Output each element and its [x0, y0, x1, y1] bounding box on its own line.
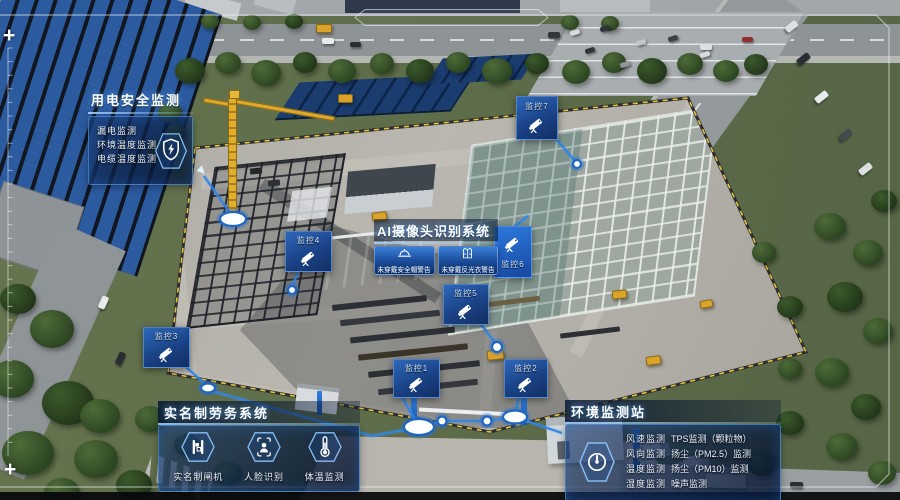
excavator [316, 24, 332, 33]
tree [370, 53, 394, 73]
tree [713, 60, 739, 82]
site-office [344, 164, 435, 214]
tree [406, 59, 434, 83]
vehicle [858, 162, 873, 176]
tower-crane-cab [229, 90, 240, 99]
material-stack [268, 179, 281, 186]
camera-marker-label: 监控3 [155, 331, 178, 342]
camera-marker-label: 监控6 [501, 259, 524, 270]
excavator [487, 349, 505, 361]
excavator [612, 289, 628, 300]
warning-no-helmet-label: 未穿戴安全帽警告 [378, 265, 431, 275]
tree [815, 358, 849, 387]
electric-item: 环境温度监测 [97, 138, 157, 152]
tree [851, 394, 881, 420]
env-item: 噪声监测 [671, 477, 752, 492]
excavator [338, 94, 353, 103]
tree [871, 190, 897, 212]
cctv-camera-icon [156, 344, 178, 364]
vehicle [115, 351, 127, 366]
camera-marker-label: 监控5 [454, 288, 477, 299]
tree [251, 60, 281, 86]
env-item: 扬尘（PM2.5）监测 [671, 447, 752, 462]
cctv-camera-icon [515, 374, 537, 394]
vehicle [790, 482, 803, 488]
tree [853, 240, 883, 266]
labor-item-temp[interactable]: 体温监测 [305, 431, 345, 484]
warning-no-vest-button[interactable]: 未穿戴反光衣警告 [438, 246, 499, 275]
vehicle [322, 38, 334, 44]
tree [777, 296, 803, 318]
face-recognition-icon [246, 431, 282, 468]
tree [201, 14, 219, 29]
cctv-camera-icon [298, 248, 320, 268]
tree [814, 213, 846, 240]
material-stack [250, 167, 263, 174]
tree [868, 461, 896, 485]
tree [826, 433, 858, 460]
tree [677, 53, 703, 75]
tree [562, 60, 590, 84]
panel-environment-title: 环境监测站 [571, 402, 775, 421]
far-building [560, 0, 650, 12]
cctv-camera-icon [455, 301, 477, 321]
warning-no-helmet-button[interactable]: 未穿戴安全帽警告 [374, 246, 435, 275]
camera-marker-label: 监控4 [297, 235, 320, 246]
vest-icon [461, 246, 474, 264]
gate-post [411, 396, 417, 426]
camera-marker-7[interactable]: 监控7 [516, 96, 558, 140]
map-cross-marker-top: + [3, 26, 15, 46]
tree [752, 242, 776, 262]
tree [175, 58, 205, 84]
panel-environment-station: 环境监测站 风速监测 风向监测 温度监测 湿度监测 TPS监测（颗粒物） 扬尘（ [565, 400, 781, 500]
tree [778, 358, 802, 378]
tree [293, 52, 317, 72]
tree [827, 282, 863, 313]
labor-item-label: 人脸识别 [244, 470, 284, 484]
electric-item: 电缆温度监测 [97, 152, 157, 166]
env-item: 风速监测 [626, 432, 666, 447]
tree [446, 52, 470, 72]
vehicle [814, 90, 829, 104]
tree [215, 52, 241, 74]
tree [863, 318, 893, 344]
tree [525, 53, 549, 73]
tree [30, 310, 74, 347]
cctv-camera-icon [406, 374, 428, 394]
tree [0, 284, 36, 315]
panel-ai-camera-title: AI摄像头识别系统 [377, 221, 495, 240]
vehicle [700, 44, 712, 50]
tree [744, 54, 768, 74]
vehicle [350, 42, 361, 47]
camera-marker-label: 监控7 [525, 101, 548, 112]
tree [243, 15, 261, 30]
tree [285, 14, 303, 29]
vehicle [548, 32, 560, 38]
far-building [345, 0, 520, 13]
smart-site-dashboard: + + 监控1监控2监控3监控4监控5监控6监控7 用电安全监测 漏电监测 环境… [0, 0, 900, 500]
labor-item-face[interactable]: 人脸识别 [244, 431, 284, 484]
thermometer-icon [307, 431, 343, 468]
tree [637, 58, 667, 84]
labor-item-label: 体温监测 [305, 470, 345, 484]
tree [74, 440, 118, 477]
helmet-icon [397, 246, 412, 264]
camera-marker-label: 监控1 [405, 363, 428, 374]
env-item: 温度监测 [626, 462, 666, 477]
camera-marker-4[interactable]: 监控4 [285, 231, 332, 272]
tree [561, 15, 579, 30]
map-cross-marker-bottom: + [4, 460, 16, 480]
panel-labor-system: 实名制劳务系统 实名制闸机 [158, 401, 360, 492]
tree [328, 59, 356, 83]
turnstile-icon [180, 431, 216, 468]
shield-lightning-icon [153, 131, 189, 176]
warning-no-vest-label: 未穿戴反光衣警告 [441, 265, 494, 275]
tree [482, 58, 512, 84]
panel-labor-title: 实名制劳务系统 [164, 403, 354, 422]
tree [80, 399, 120, 433]
camera-marker-5[interactable]: 监控5 [443, 284, 489, 325]
camera-marker-3[interactable]: 监控3 [143, 327, 190, 368]
env-item: 扬尘（PM10）监测 [671, 462, 752, 477]
panel-ai-camera: AI摄像头识别系统 未穿戴安全帽警告 [374, 219, 498, 275]
labor-item-gate[interactable]: 实名制闸机 [173, 431, 223, 484]
env-item: 湿度监测 [626, 477, 666, 492]
camera-marker-1[interactable]: 监控1 [393, 359, 440, 398]
vehicle [742, 37, 753, 42]
panel-electric-safety-title: 用电安全监测 [88, 90, 196, 109]
env-item: 风向监测 [626, 447, 666, 462]
electric-item: 漏电监测 [97, 124, 157, 138]
cctv-camera-icon [502, 234, 524, 254]
camera-marker-2[interactable]: 监控2 [504, 359, 548, 398]
gauge-icon [577, 440, 617, 489]
camera-marker-label: 监控2 [514, 363, 537, 374]
labor-item-label: 实名制闸机 [173, 470, 223, 484]
gate-post [521, 395, 527, 425]
cctv-camera-icon [526, 115, 548, 135]
camera-marker-6[interactable]: 监控6 [494, 226, 532, 278]
env-item: TPS监测（颗粒物） [671, 432, 752, 447]
vehicle [838, 128, 853, 142]
tower-crane-mast [228, 96, 237, 216]
panel-electric-safety: 用电安全监测 漏电监测 环境温度监测 电缆温度监测 [88, 90, 196, 185]
